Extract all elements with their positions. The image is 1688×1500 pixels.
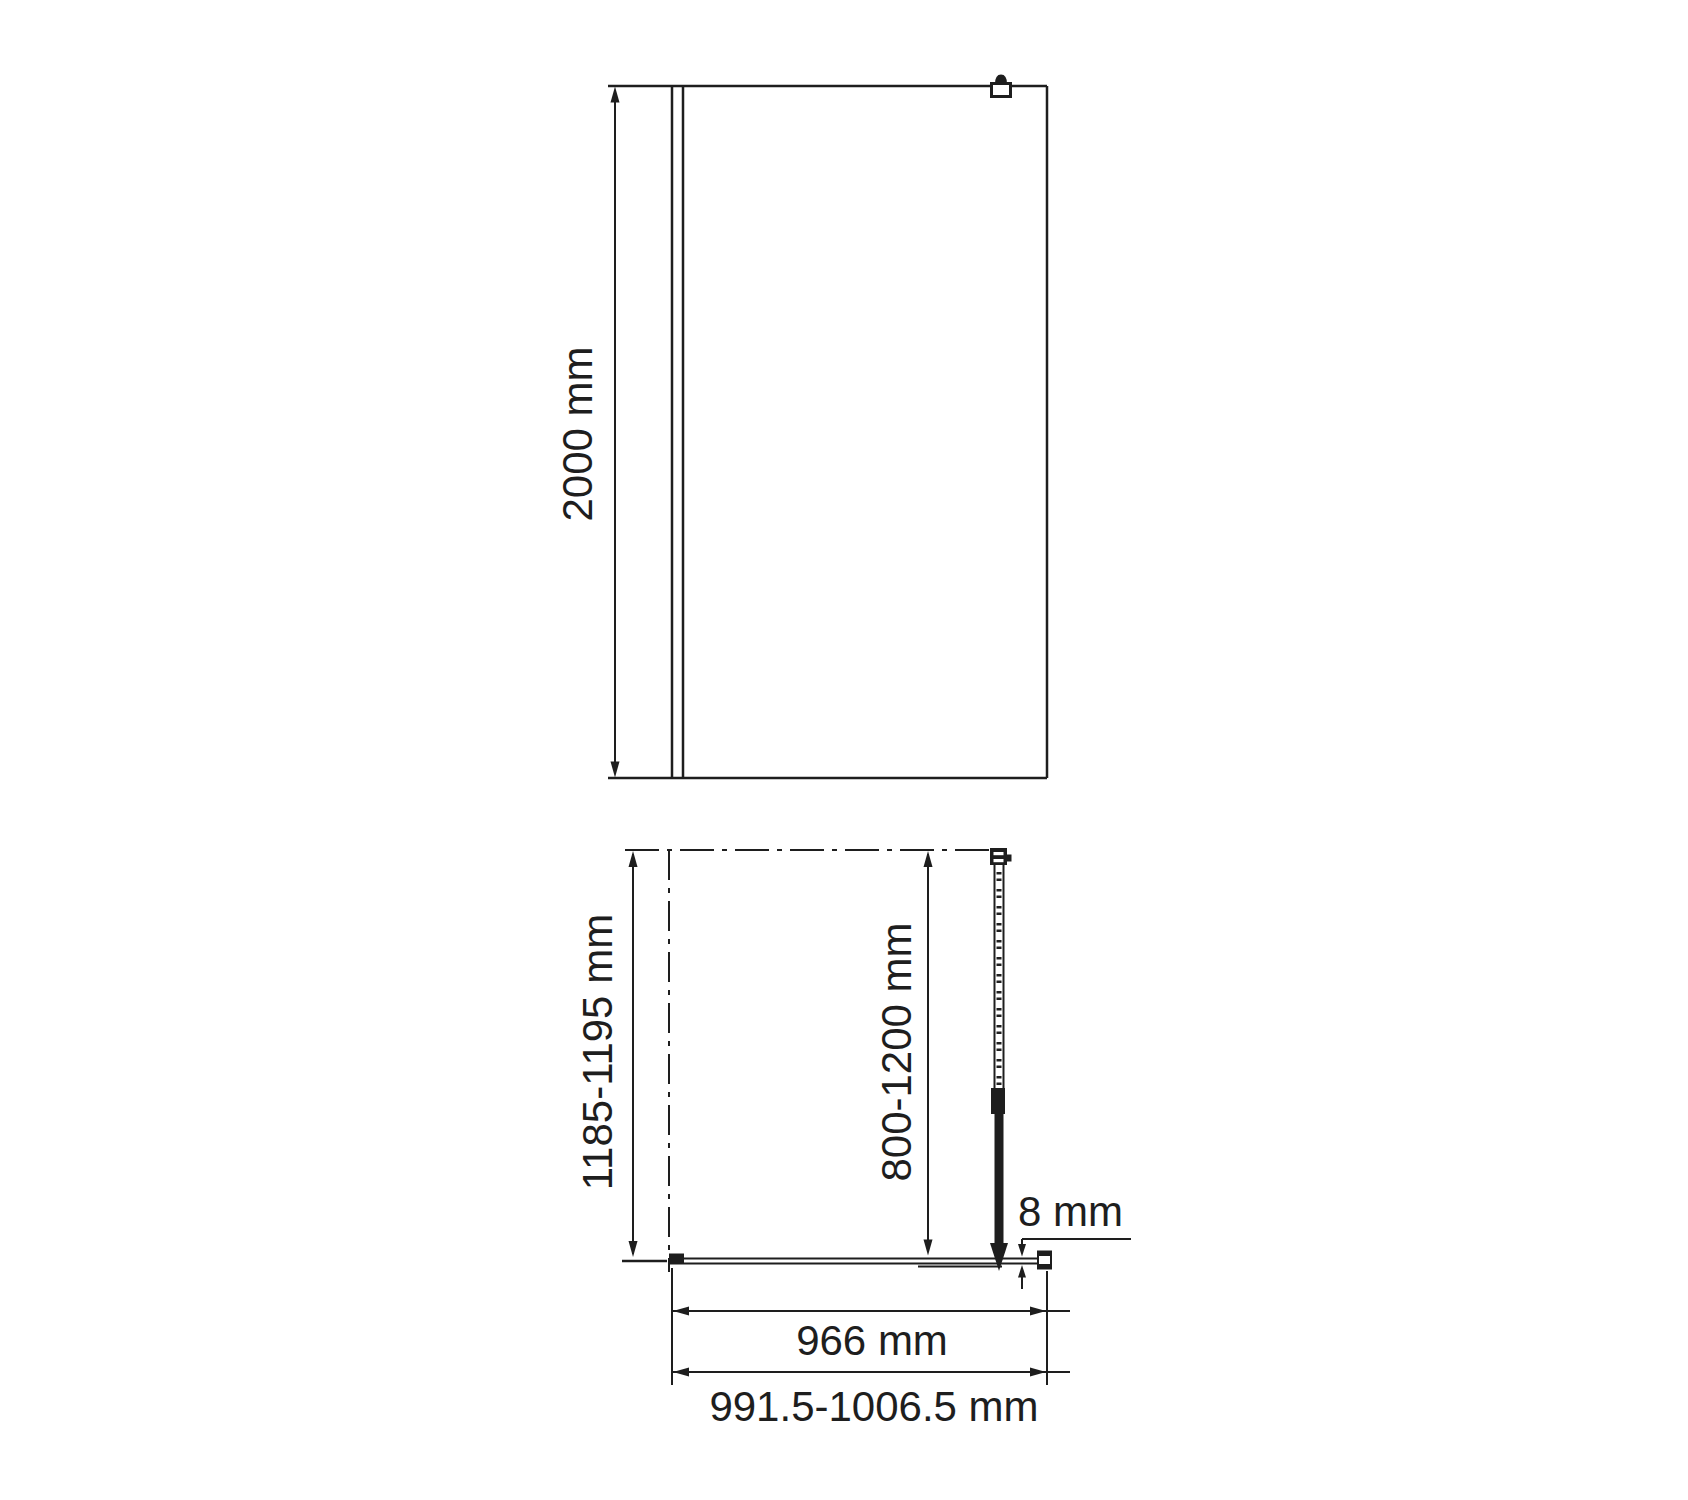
support-bar-dimension-label: 800-1200 mm bbox=[873, 922, 920, 1181]
technical-drawing: 2000 mm bbox=[0, 0, 1688, 1500]
arrowhead-down bbox=[924, 1240, 933, 1256]
arrowhead-right bbox=[1030, 1307, 1046, 1316]
support-bar-wall-clamp-icon bbox=[990, 848, 1012, 865]
wall-profile-plan-icon bbox=[1038, 1252, 1051, 1269]
arrowhead-down bbox=[611, 762, 620, 778]
arrowhead-left bbox=[673, 1307, 689, 1316]
glass-width-dimension: 966 mm bbox=[673, 1307, 1070, 1364]
arrowhead-right bbox=[1030, 1368, 1046, 1377]
technical-drawing-canvas: 2000 mm bbox=[0, 0, 1688, 1500]
overall-width-label: 991.5-1006.5 mm bbox=[709, 1383, 1038, 1430]
wall-profile-top-flange bbox=[1038, 1252, 1051, 1257]
bracket-body bbox=[992, 84, 1011, 97]
depth-dimension: 1185-1195 mm bbox=[574, 851, 667, 1261]
arrowhead-up bbox=[629, 851, 638, 867]
clamp-slot-bottom bbox=[994, 859, 1004, 862]
plan-view: 1185-1195 mm 800-1200 mm 8 mm 966 mm bbox=[574, 848, 1131, 1430]
arrowhead-up bbox=[1018, 1265, 1026, 1278]
arrowhead-up bbox=[611, 87, 620, 103]
glass-thickness-label: 8 mm bbox=[1018, 1188, 1123, 1235]
support-bar-rod bbox=[995, 1114, 1004, 1245]
height-dimension-label: 2000 mm bbox=[554, 346, 601, 521]
front-view: 2000 mm bbox=[554, 75, 1047, 779]
arrowhead-up bbox=[924, 851, 933, 867]
support-bracket-front-icon bbox=[992, 75, 1011, 97]
clamp-screw-nub bbox=[1007, 855, 1012, 862]
support-bar-sleeve bbox=[991, 1088, 1005, 1114]
height-dimension: 2000 mm bbox=[554, 87, 620, 778]
support-bar-dimension: 800-1200 mm bbox=[873, 851, 933, 1256]
overall-width-dimension: 991.5-1006.5 mm bbox=[673, 1368, 1070, 1430]
glass-thickness-dimension: 8 mm bbox=[1018, 1188, 1131, 1289]
arrowhead-left bbox=[673, 1368, 689, 1377]
arrowhead-down bbox=[629, 1241, 638, 1257]
wall-profile-bottom-flange bbox=[1038, 1264, 1051, 1269]
arrowhead-down bbox=[1018, 1244, 1026, 1257]
glass-width-label: 966 mm bbox=[796, 1317, 948, 1364]
clamp-slot-top bbox=[994, 852, 1004, 855]
clamp-body bbox=[990, 848, 1007, 865]
depth-dimension-label: 1185-1195 mm bbox=[574, 914, 621, 1190]
support-bar bbox=[990, 865, 1008, 1271]
